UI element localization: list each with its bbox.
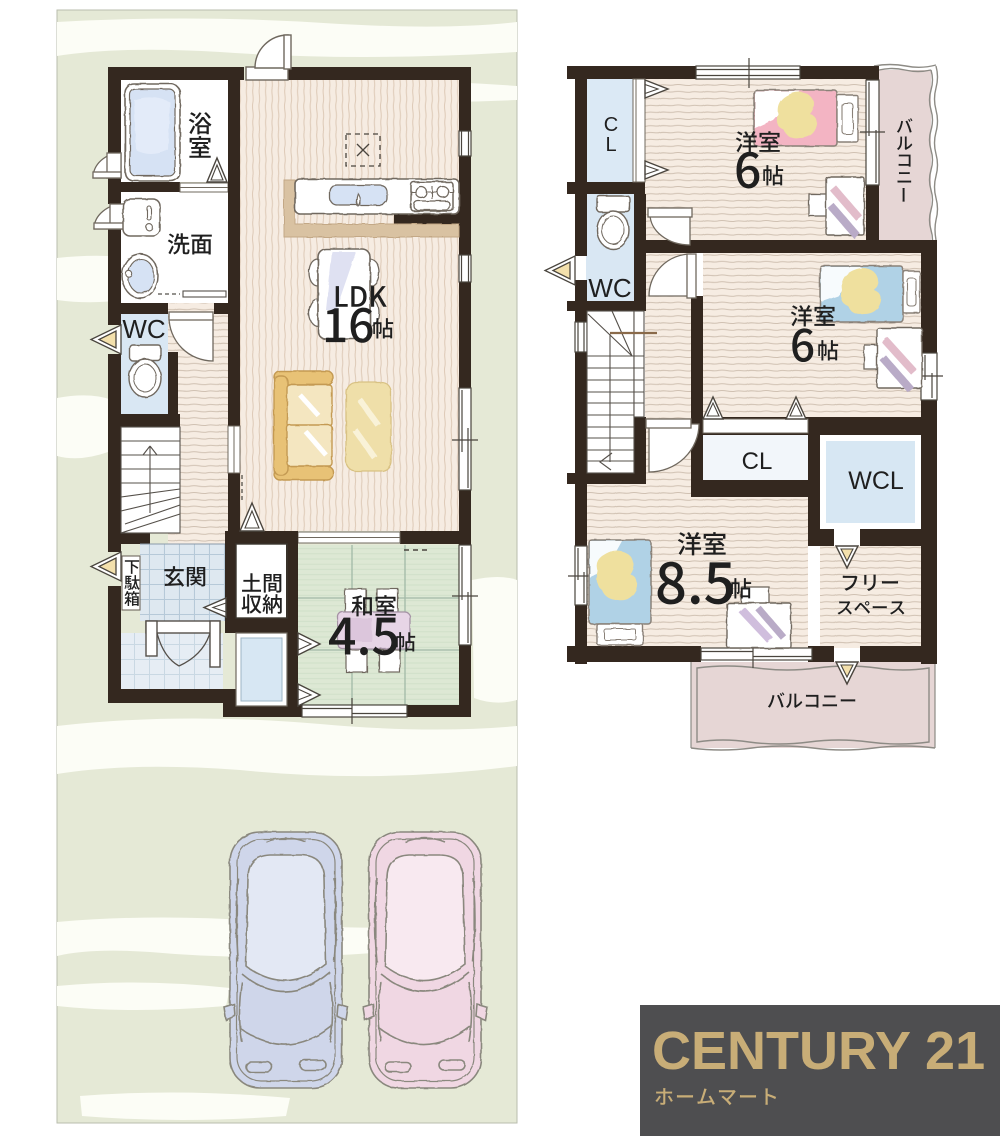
svg-text:CL: CL bbox=[742, 448, 773, 475]
svg-text:C: C bbox=[604, 114, 618, 136]
svg-text:WC: WC bbox=[122, 314, 165, 344]
svg-text:WCL: WCL bbox=[848, 467, 904, 495]
svg-text:CENTURY 21: CENTURY 21 bbox=[652, 1021, 985, 1081]
svg-text:L: L bbox=[605, 134, 616, 156]
svg-text:WC: WC bbox=[588, 273, 631, 303]
